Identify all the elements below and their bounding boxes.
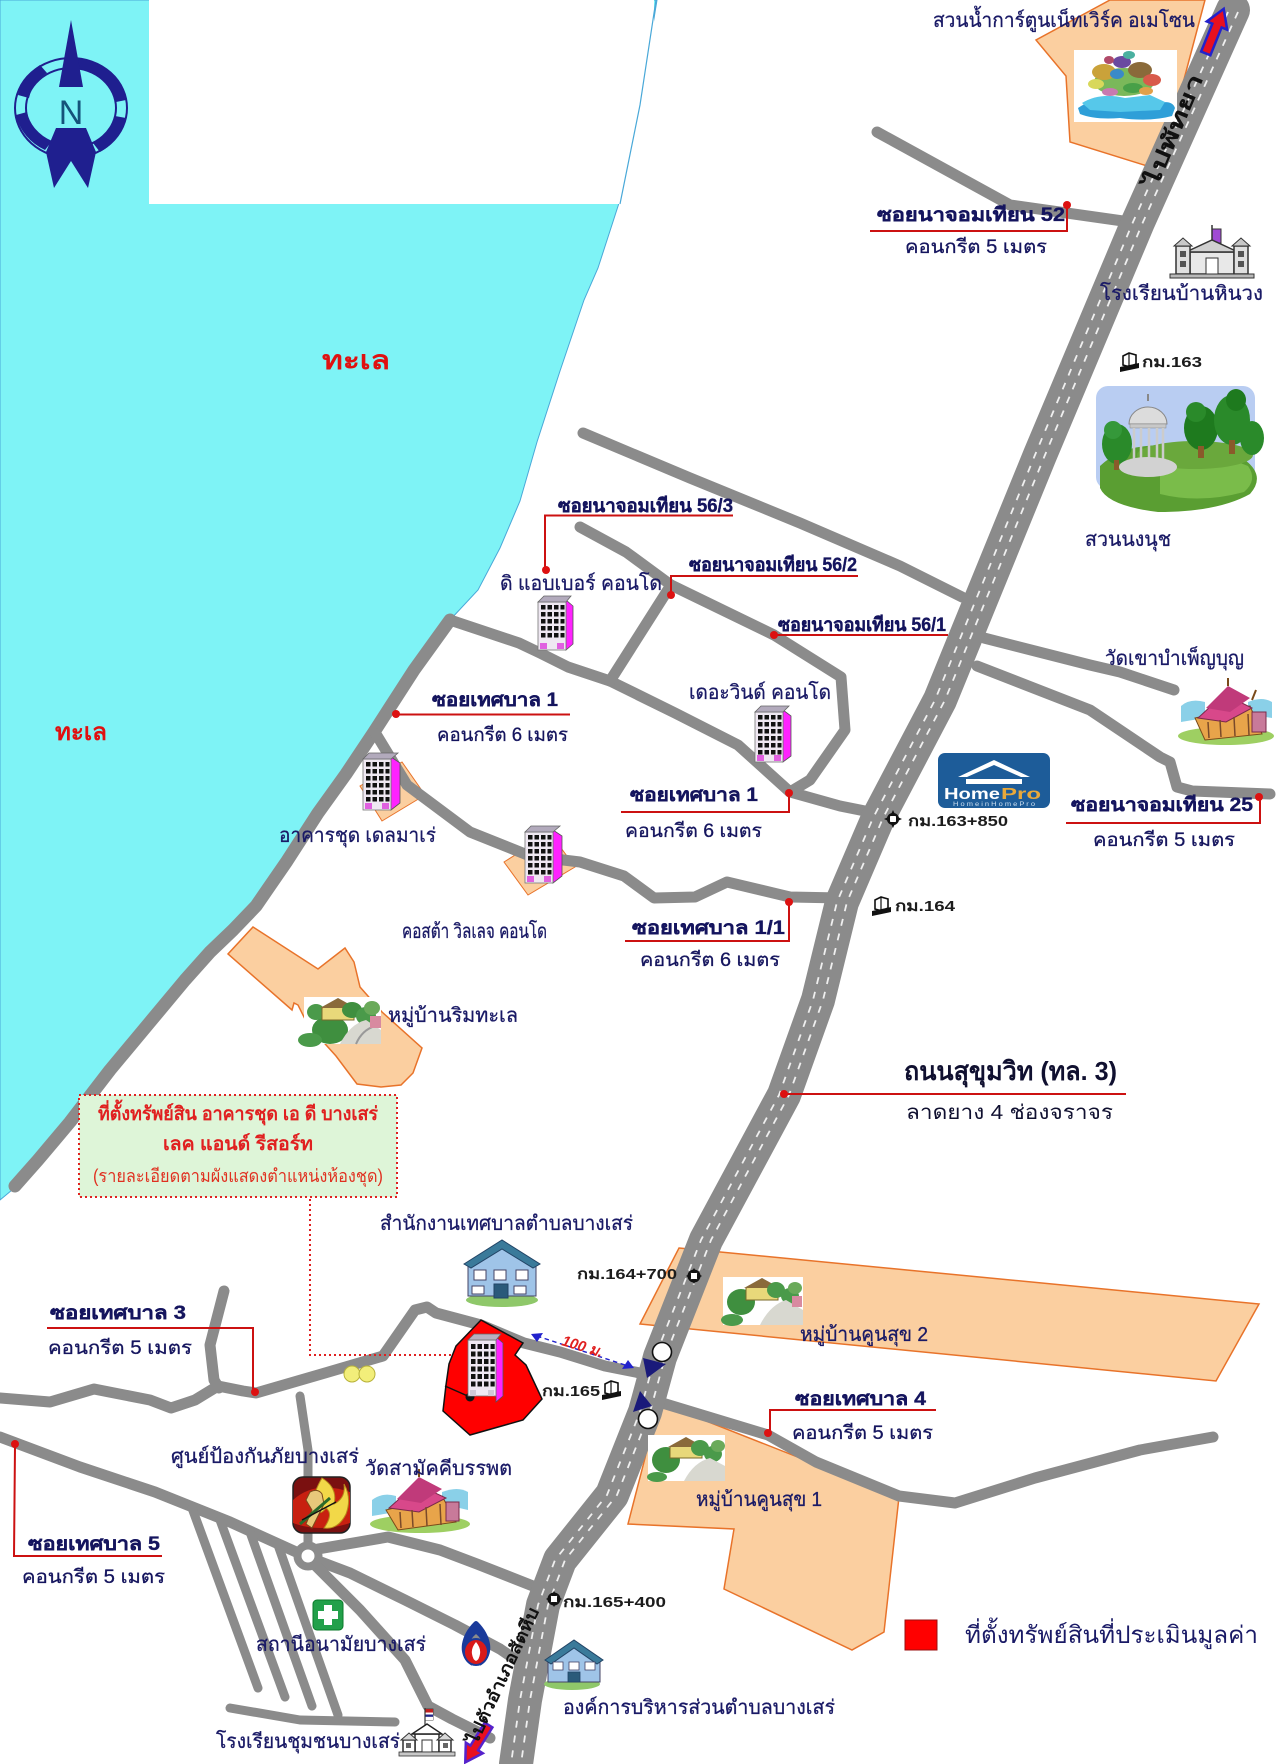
svg-text:N: N bbox=[59, 94, 84, 132]
svg-text:H o m e i n H o m e P r o: H o m e i n H o m e P r o bbox=[953, 802, 1036, 808]
svg-text:อาคารชุด เดลมาเร่: อาคารชุด เดลมาเร่ bbox=[279, 825, 436, 848]
svg-text:Home: Home bbox=[944, 786, 1000, 803]
svg-text:ดิ แอบเบอร์ คอนโด: ดิ แอบเบอร์ คอนโด bbox=[500, 572, 662, 595]
svg-text:โรงเรียนบ้านหินวง: โรงเรียนบ้านหินวง bbox=[1100, 282, 1263, 305]
svg-text:Pro: Pro bbox=[1001, 786, 1041, 803]
svg-text:ซอยนาจอมเทียน 25: ซอยนาจอมเทียน 25 bbox=[1071, 794, 1253, 816]
svg-text:ที่ตั้งทรัพย์สิน อาคารชุด เอ ด: ที่ตั้งทรัพย์สิน อาคารชุด เอ ดี บางเสร่ bbox=[98, 1099, 379, 1126]
svg-text:เลค แอนด์ รีสอร์ท: เลค แอนด์ รีสอร์ท bbox=[163, 1133, 313, 1155]
svg-text:ทะเล: ทะเล bbox=[55, 719, 107, 746]
svg-text:กม.164: กม.164 bbox=[895, 898, 956, 915]
svg-text:(รายละเอียดตามผังแสดงตำแหน่งห้: (รายละเอียดตามผังแสดงตำแหน่งห้องชุด) bbox=[93, 1166, 383, 1187]
svg-text:ซอยเทศบาล 3: ซอยเทศบาล 3 bbox=[50, 1303, 186, 1324]
svg-text:วัดเขาบำเพ็ญบุญ: วัดเขาบำเพ็ญบุญ bbox=[1105, 645, 1244, 671]
svg-text:องค์การบริหารส่วนตำบลบางเสร่: องค์การบริหารส่วนตำบลบางเสร่ bbox=[563, 1696, 835, 1719]
svg-text:ลาดยาง 4 ช่องจราจร: ลาดยาง 4 ช่องจราจร bbox=[906, 1102, 1113, 1124]
svg-text:สถานีอนามัยบางเสร่: สถานีอนามัยบางเสร่ bbox=[256, 1634, 426, 1656]
svg-text:ซอยเทศบาล 1: ซอยเทศบาล 1 bbox=[432, 690, 558, 711]
svg-text:ซอยนาจอมเทียน 52: ซอยนาจอมเทียน 52 bbox=[877, 204, 1065, 226]
svg-text:สำนักงานเทศบาลตำบลบางเสร่: สำนักงานเทศบาลตำบลบางเสร่ bbox=[380, 1213, 633, 1235]
svg-text:กม.165: กม.165 bbox=[542, 1383, 600, 1400]
svg-text:ซอยนาจอมเทียน 56/2: ซอยนาจอมเทียน 56/2 bbox=[689, 554, 857, 576]
svg-text:คอนกรีต 6 เมตร: คอนกรีต 6 เมตร bbox=[437, 724, 568, 746]
svg-text:คอนกรีต 5 เมตร: คอนกรีต 5 เมตร bbox=[1093, 829, 1235, 851]
svg-text:กม.163+850: กม.163+850 bbox=[908, 813, 1008, 830]
svg-text:เดอะวินด์ คอนโด: เดอะวินด์ คอนโด bbox=[689, 681, 831, 704]
svg-text:คอนกรีต 6 เมตร: คอนกรีต 6 เมตร bbox=[640, 949, 780, 971]
svg-text:กม.163: กม.163 bbox=[1142, 354, 1202, 371]
svg-text:หมู่บ้านคูนสุข 1: หมู่บ้านคูนสุข 1 bbox=[696, 1489, 822, 1512]
svg-text:หมู่บ้านริมทะเล: หมู่บ้านริมทะเล bbox=[388, 1005, 518, 1028]
svg-text:ซอยนาจอมเทียน 56/1: ซอยนาจอมเทียน 56/1 bbox=[778, 614, 946, 636]
svg-text:สวนนงนุช: สวนนงนุช bbox=[1085, 529, 1171, 552]
svg-text:ศูนย์ป้องกันภัยบางเสร่: ศูนย์ป้องกันภัยบางเสร่ bbox=[171, 1445, 359, 1469]
svg-text:ซอยเทศบาล 1/1: ซอยเทศบาล 1/1 bbox=[632, 918, 785, 939]
svg-text:สวนน้ำการ์ตูนเน็ทเวิร์ค อเมโซน: สวนน้ำการ์ตูนเน็ทเวิร์ค อเมโซน bbox=[933, 6, 1195, 33]
svg-text:คอสต้า วิลเลจ คอนโด: คอสต้า วิลเลจ คอนโด bbox=[402, 920, 547, 943]
svg-text:ซอยเทศบาล 1: ซอยเทศบาล 1 bbox=[630, 785, 758, 806]
svg-text:คอนกรีต 6 เมตร: คอนกรีต 6 เมตร bbox=[625, 820, 762, 842]
svg-text:หมู่บ้านคูนสุข 2: หมู่บ้านคูนสุข 2 bbox=[800, 1324, 928, 1347]
svg-text:ซอยเทศบาล 4: ซอยเทศบาล 4 bbox=[795, 1389, 926, 1410]
svg-text:วัดสามัคคีบรรพต: วัดสามัคคีบรรพต bbox=[365, 1458, 512, 1480]
svg-text:ถนนสุขุมวิท (ทล. 3): ถนนสุขุมวิท (ทล. 3) bbox=[904, 1056, 1117, 1088]
svg-text:ซอยนาจอมเทียน 56/3: ซอยนาจอมเทียน 56/3 bbox=[558, 495, 733, 517]
svg-text:ซอยเทศบาล 5: ซอยเทศบาล 5 bbox=[28, 1534, 160, 1555]
svg-text:คอนกรีต 5 เมตร: คอนกรีต 5 เมตร bbox=[905, 236, 1047, 258]
svg-text:คอนกรีต 5 เมตร: คอนกรีต 5 เมตร bbox=[22, 1566, 165, 1588]
svg-text:ทะเล: ทะเล bbox=[322, 345, 390, 375]
svg-text:ที่ตั้งทรัพย์สินที่ประเมินมูลค: ที่ตั้งทรัพย์สินที่ประเมินมูลค่า bbox=[965, 1617, 1258, 1650]
svg-text:คอนกรีต 5 เมตร: คอนกรีต 5 เมตร bbox=[792, 1422, 933, 1444]
svg-text:กม.164+700: กม.164+700 bbox=[577, 1266, 677, 1283]
svg-text:กม.165+400: กม.165+400 bbox=[563, 1594, 666, 1611]
svg-text:คอนกรีต 5 เมตร: คอนกรีต 5 เมตร bbox=[48, 1337, 192, 1359]
svg-text:โรงเรียนชุมชนบางเสร่: โรงเรียนชุมชนบางเสร่ bbox=[216, 1730, 400, 1754]
